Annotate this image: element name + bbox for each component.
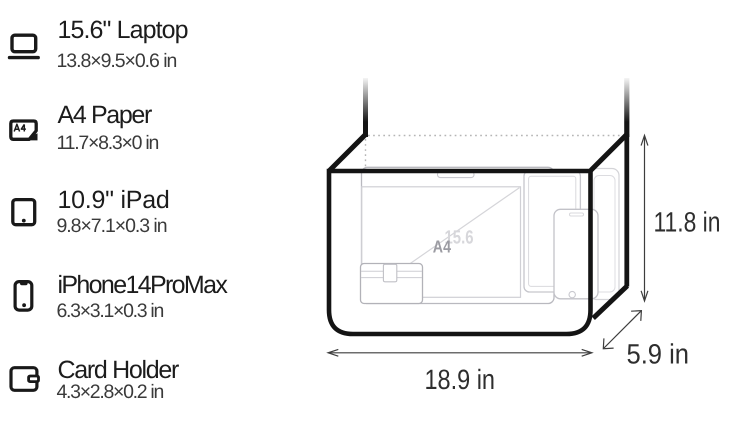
svg-text:11.8 in: 11.8 in — [654, 207, 721, 238]
svg-text:18.9 in: 18.9 in — [425, 364, 496, 395]
svg-text:A4: A4 — [433, 237, 451, 257]
svg-text:5.9 in: 5.9 in — [627, 338, 690, 369]
